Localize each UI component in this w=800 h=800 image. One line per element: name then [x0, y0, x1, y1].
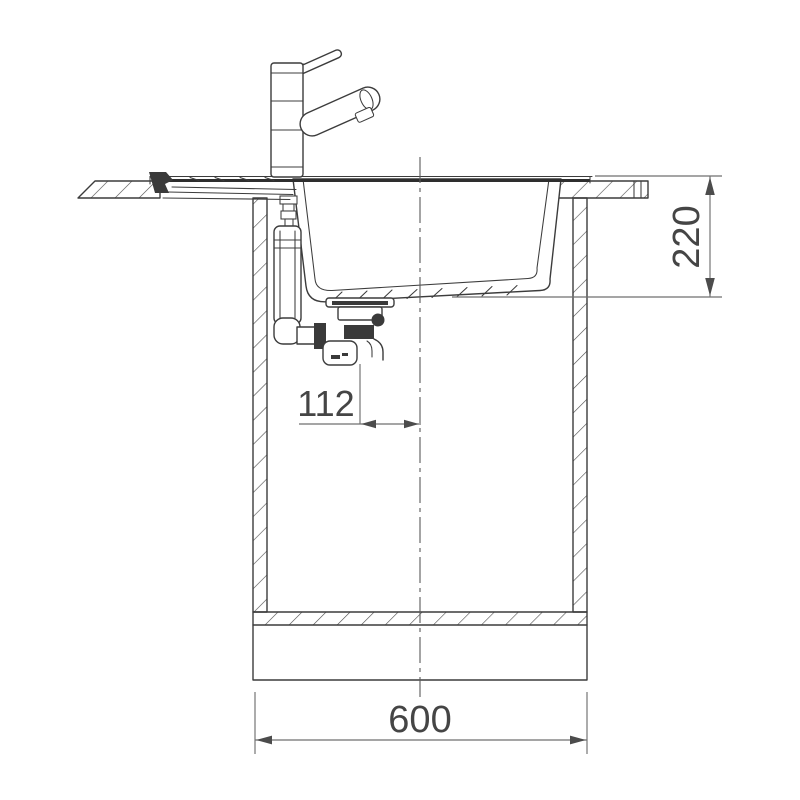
technical-drawing-canvas: 220 112 600	[0, 0, 800, 800]
sink-basin	[293, 179, 561, 302]
arrow-up-icon	[705, 177, 715, 195]
arrow-left-icon	[361, 420, 376, 428]
drain-knob	[372, 314, 385, 327]
arrow-right-icon	[404, 420, 419, 428]
sink-cross-section-drawing: 220 112 600	[0, 0, 800, 800]
countertop-right	[558, 181, 648, 198]
dimension-label-width: 600	[388, 699, 451, 741]
arrow-right-icon	[570, 736, 586, 745]
drain-trap-cup	[323, 341, 357, 365]
dimension-label-depth: 220	[666, 205, 708, 268]
faucet-spout	[296, 83, 386, 145]
cabinet-left-wall	[253, 198, 267, 612]
cabinet-right-wall	[573, 198, 587, 612]
arrow-left-icon	[256, 736, 272, 745]
dimension-cabinet-width: 600	[255, 692, 587, 754]
drain-valve-body	[344, 325, 374, 339]
dimension-drain-offset: 112	[297, 364, 421, 428]
arrow-down-icon	[705, 278, 715, 296]
faucet-body	[271, 63, 303, 177]
faucet	[271, 49, 386, 177]
countertop-left	[78, 181, 160, 198]
drain-assembly	[323, 298, 394, 365]
dimension-label-offset: 112	[297, 383, 354, 424]
